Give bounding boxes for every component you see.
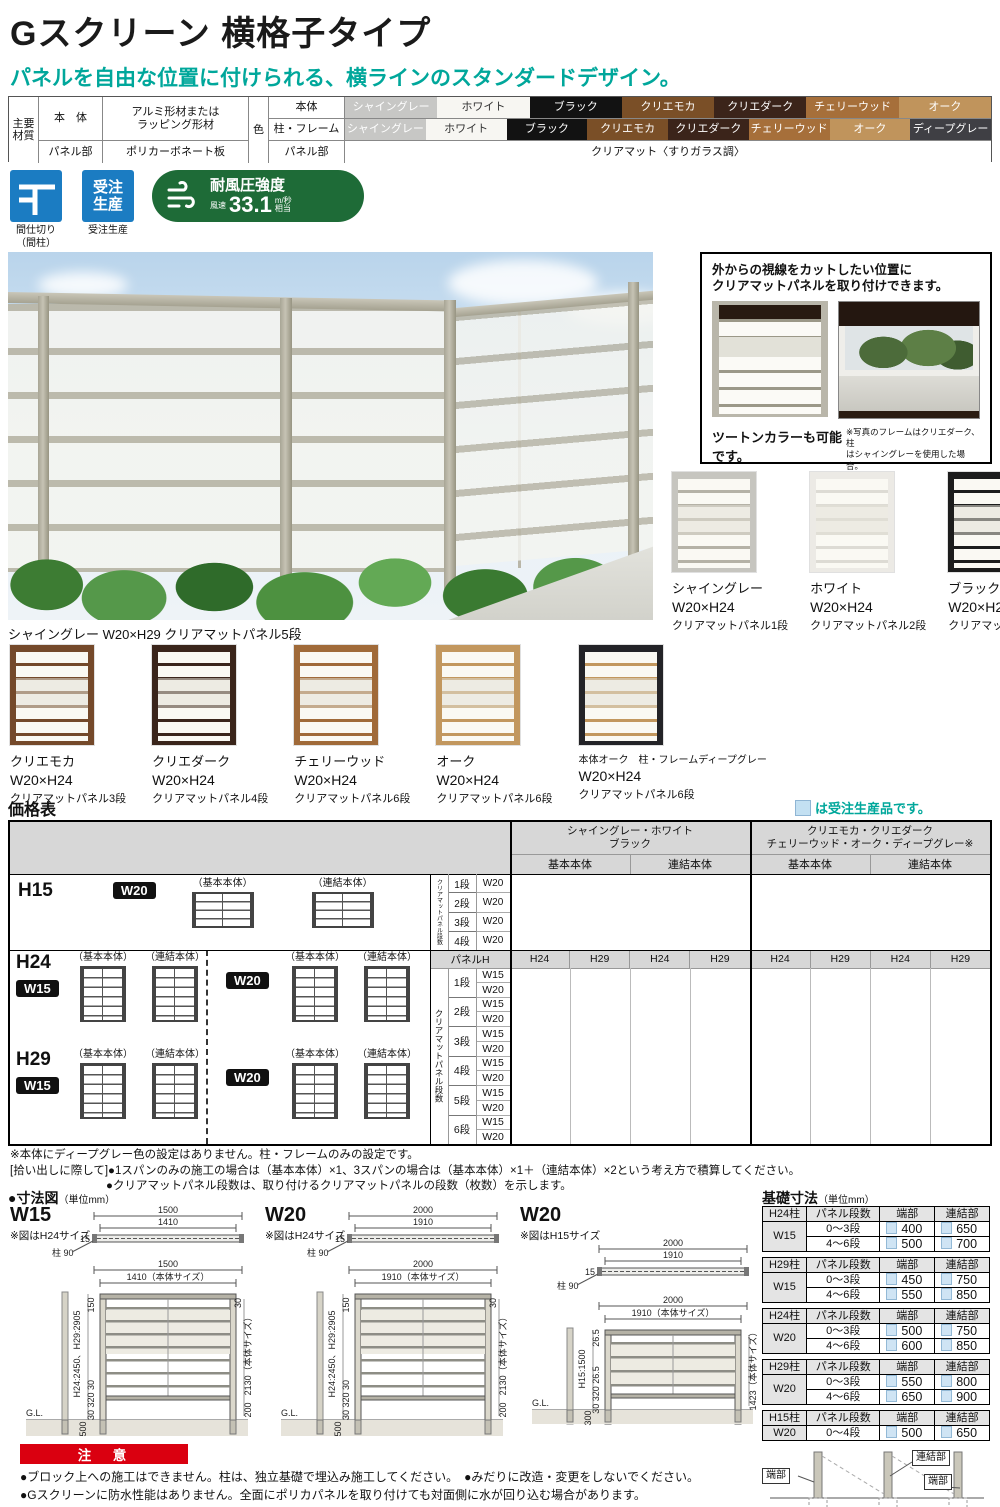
dimension-diagram-w15: W15 ※図はH24サイズ 1500 1410 15 柱 90 1500 141… [8,1204,258,1442]
svg-text:G.L.: G.L. [281,1408,298,1418]
svg-text:2000: 2000 [663,1238,683,1248]
svg-text:1410（本体サイズ）: 1410（本体サイズ） [127,1271,210,1282]
svg-text:30: 30 [488,1298,498,1308]
svg-text:1500: 1500 [158,1205,178,1215]
fence-thumbnail [10,645,94,745]
spec-panel-value: ポリカーボネート板 [103,141,249,163]
panel-count-side-label: クリアマットパネル段数 [430,874,448,950]
fence-line-diagram [152,966,198,1022]
partition-label: 間仕切り（間柱） [8,225,64,250]
edge-label: 端部 [762,1468,790,1484]
foundation-diagram: 端部 連結部 端部 [762,1446,990,1507]
svg-text:500: 500 [333,1421,343,1436]
variation-card: クリエモカW20×H24クリアマットパネル3段 [10,645,126,806]
callout-title-line2: クリアマットパネルを取り付けできます。 [712,278,980,294]
color-variations-right: シャイングレーW20×H24クリアマットパネル1段 ホワイトW20×H24クリア… [672,472,1000,633]
svg-text:30 320 30: 30 320 30 [341,1380,351,1420]
spec-table: 主要材質 本 体 アルミ形材またはラッピング形材 パネル部 ポリカーボネート板 … [8,96,992,162]
color-row2-label: 柱・フレーム [269,119,345,141]
callout-note: ※写真のフレームはクリエダーク、柱はシャイングレーを使用した場合。 [846,427,980,473]
subheader-basic: 基本本体 [750,854,870,874]
callout-photo [838,301,980,419]
svg-text:2000: 2000 [413,1205,433,1215]
h15-label: H15 [18,880,53,902]
page-title: Gスクリーン 横格子タイプ [10,6,431,55]
h15-row: H15 W20 （基本本体） （連結本体） [10,874,430,950]
fence-thumbnail [672,472,756,572]
wind-icon [166,179,200,213]
panel-count-side-label: クリアマットパネル段数 [430,968,448,1144]
w15-badge: W15 [16,980,59,997]
svg-text:1500: 1500 [158,1259,178,1269]
svg-text:G.L.: G.L. [532,1398,549,1408]
w20-badge: W20 [226,972,269,989]
note-line: ※本体にディープグレー色の設定はありません。柱・フレームのみの設定です。 [10,1148,800,1164]
spec-body-value: アルミ形材またはラッピング形材 [103,97,249,141]
feature-badges: 間仕切り（間柱） 受注生産 受注生産 耐風圧強度 風速 33.1 [8,170,364,250]
variation-card: ブラックW20×H24クリアマットパネル2段 [948,472,1000,633]
color-row1-swatches: シャイングレー ホワイト ブラック クリエモカ クリエダーク チェリーウッド オ… [345,97,991,119]
svg-text:2130（本体サイズ）: 2130（本体サイズ） [242,1313,253,1396]
svg-text:柱 90: 柱 90 [557,1280,579,1291]
page-subtitle: パネルを自由な位置に付けられる、横ラインのスタンダードデザイン。 [10,62,681,92]
caution-line: ●Gスクリーンに防水性能はありません。全面にポリカパネルを取り付けても対面側に水… [20,1486,646,1503]
h24-label: H24 [16,952,70,974]
svg-text:30 320 26.5: 30 320 26.5 [591,1366,601,1414]
fence-thumbnail [294,645,378,745]
color-swatch: ディープグレー [910,119,991,140]
dimension-diagrams: W15 ※図はH24サイズ 1500 1410 15 柱 90 1500 141… [8,1204,758,1444]
spec-panel-label: パネル部 [39,141,103,163]
svg-text:150: 150 [86,1297,96,1312]
fence-line-diagram [80,966,126,1022]
caution-banner: 注 意 [20,1444,188,1464]
w20-badge: W20 [113,882,156,899]
fence-line-diagram [364,966,410,1022]
svg-text:1423（本体サイズ）: 1423（本体サイズ） [747,1328,758,1411]
fence-line-diagram [312,892,374,928]
foundation-table: H29柱パネル段数端部連結部 W150〜3段 450 750 4〜6段 550 … [762,1257,990,1303]
wind-value: 33.1 [229,195,272,215]
svg-text:G.L.: G.L. [26,1408,43,1418]
price-table-title: 価格表 [8,796,56,820]
made-to-order-label: 受注生産 [80,225,136,238]
callout-fence-diagram [712,301,828,417]
color-swatch: シャイングレー [345,119,426,140]
color-swatch: シャイングレー [345,97,437,118]
svg-text:200: 200 [498,1402,508,1417]
svg-text:30: 30 [233,1298,243,1308]
wind-title: 耐風圧強度 [210,178,292,193]
fence-thumbnail [152,645,236,745]
price-table: シャイングレー・ホワイトブラック クリエモカ・クリエダークチェリーウッド・オーク… [8,820,992,1146]
foundation-table: H24柱パネル段数端部連結部 W150〜3段 400 650 4〜6段 500 … [762,1206,990,1252]
color-row2-swatches: シャイングレー ホワイト ブラック クリエモカ クリエダーク チェリーウッド オ… [345,119,991,141]
svg-text:200: 200 [243,1402,253,1417]
color-swatch: チェリーウッド [806,97,898,118]
made-to-order-legend: は受注生産品です。 [795,798,931,817]
foundation-table: H24柱パネル段数端部連結部 W200〜3段 500 750 4〜6段 600 … [762,1308,990,1354]
color-swatch: クリエモカ [622,97,714,118]
foundation-section-title: 基礎寸法（単位mm） [762,1188,875,1208]
svg-text:300: 300 [583,1410,593,1425]
foundation-table: H15柱パネル段数端部連結部 W200〜4段 500 650 [762,1410,990,1441]
caution-line: ●ブロック上への施工はできません。柱は、独立基礎で埋込み施工してください。 ●み… [20,1468,699,1485]
w15-badge: W15 [16,1077,59,1094]
svg-text:15: 15 [585,1267,595,1277]
variation-card: 本体オーク 柱・フレームディープグレーW20×H24クリアマットパネル6段 [579,645,729,806]
callout-box: 外からの視線をカットしたい位置に クリアマットパネルを取り付けできます。 ツート… [700,252,992,464]
svg-text:柱 90: 柱 90 [52,1247,74,1258]
fence-line-diagram [152,1063,198,1119]
svg-text:15: 15 [335,1234,345,1244]
fence-line-diagram [292,966,338,1022]
color-swatch: クリエダーク [668,119,749,140]
color-row1-label: 本体 [269,97,345,119]
made-to-order-icon: 受注生産 [82,170,134,222]
fence-thumbnail [436,645,520,745]
legend-square [795,800,811,816]
fence-thumbnail [579,645,663,745]
color-swatch: クリエモカ [587,119,668,140]
color-swatch: ホワイト [426,119,507,140]
edge-label: 端部 [924,1474,952,1490]
color-row3-label: パネル部 [269,141,345,163]
fence-thumbnail [810,472,894,572]
product-photo [8,252,653,620]
dimension-diagram-w20-h24: W20 ※図はH24サイズ 2000 1910 15 柱 90 2000 191… [263,1204,513,1442]
svg-text:26.5: 26.5 [591,1329,601,1347]
fence-line-diagram [364,1063,410,1119]
svg-text:H15:1500: H15:1500 [577,1349,587,1388]
dimension-diagram-w20-h15: W20 ※図はH15サイズ 2000 1910 15 柱 90 2000 191… [518,1204,768,1442]
svg-text:柱 90: 柱 90 [307,1247,329,1258]
svg-text:1910: 1910 [413,1217,433,1227]
color-swatch: オーク [899,97,991,118]
color-swatch: ブラック [530,97,622,118]
color-row3-value: クリアマット〈すりガラス調〉 [345,141,991,163]
spec-group-label: 主要材質 [9,97,39,163]
foundation-table: H29柱パネル段数端部連結部 W200〜3段 550 800 4〜6段 650 … [762,1359,990,1405]
panel-h-label: パネルH [430,950,510,968]
color-swatch: ホワイト [437,97,529,118]
color-swatch: オーク [830,119,911,140]
color-group-header-1: シャイングレー・ホワイトブラック [510,822,750,854]
color-variations-bottom: クリエモカW20×H24クリアマットパネル3段 クリエダークW20×H24クリア… [10,645,729,806]
wind-resistance-badge: 耐風圧強度 風速 33.1 m/秒相当 [152,170,364,222]
callout-title-line1: 外からの視線をカットしたい位置に [712,262,980,278]
w20-badge: W20 [226,1069,269,1086]
color-swatch: チェリーウッド [749,119,830,140]
table-notes: ※本体にディープグレー色の設定はありません。柱・フレームのみの設定です。 [拾い… [10,1148,800,1195]
catalog-page: Gスクリーン 横格子タイプ パネルを自由な位置に付けられる、横ラインのスタンダー… [0,0,1000,1507]
partition-icon [10,170,62,222]
subheader-basic: 基本本体 [510,854,630,874]
svg-text:1410: 1410 [158,1217,178,1227]
svg-text:2000: 2000 [663,1295,683,1305]
svg-text:15: 15 [80,1234,90,1244]
fence-line-diagram [292,1063,338,1119]
svg-text:H24:2450、H29:2905: H24:2450、H29:2905 [327,1310,337,1397]
fence-line-diagram [192,892,254,928]
note-line: ●クリアマットパネル段数は、取り付けるクリアマットパネルの段数（枚数）を示します… [10,1179,800,1195]
svg-text:1910（本体サイズ）: 1910（本体サイズ） [382,1271,465,1282]
spec-body-label: 本 体 [39,97,103,141]
variation-card: クリエダークW20×H24クリアマットパネル4段 [152,645,268,806]
color-swatch: ブラック [507,119,588,140]
svg-text:500: 500 [78,1421,88,1436]
h29-label: H29 [16,1049,70,1071]
svg-text:150: 150 [341,1297,351,1312]
variation-card: オークW20×H24クリアマットパネル6段 [436,645,552,806]
svg-text:2130（本体サイズ）: 2130（本体サイズ） [497,1313,508,1396]
color-swatch: クリエダーク [714,97,806,118]
fence-line-diagram [80,1063,126,1119]
svg-text:1910: 1910 [663,1250,683,1260]
svg-text:2000: 2000 [413,1259,433,1269]
svg-text:30 320 30: 30 320 30 [86,1380,96,1420]
note-line: [拾い出しに際して]●1スパンのみの施工の場合は（基本本体）×1、3スパンの場合… [10,1164,800,1180]
joint-label: 連結部 [912,1450,950,1466]
variation-card: ホワイトW20×H24クリアマットパネル2段 [810,472,926,633]
svg-text:1910（本体サイズ）: 1910（本体サイズ） [632,1307,715,1318]
foundation-tables: H24柱パネル段数端部連結部 W150〜3段 400 650 4〜6段 500 … [762,1206,992,1507]
subheader-joint: 連結本体 [870,854,990,874]
variation-card: チェリーウッドW20×H24クリアマットパネル6段 [294,645,410,806]
spec-color-label: 色 [249,97,269,163]
fence-thumbnail [948,472,1000,572]
h24-h29-rows: H24 W15 （基本本体） （連結本体） W20 （基本本体） （連結本体） … [10,950,430,1144]
svg-text:H24:2450、H29:2905: H24:2450、H29:2905 [72,1310,82,1397]
variation-card: シャイングレーW20×H24クリアマットパネル1段 [672,472,788,633]
photo-caption: シャイングレー W20×H29 クリアマットパネル5段 [8,624,302,643]
subheader-joint: 連結本体 [630,854,750,874]
color-group-header-2: クリエモカ・クリエダークチェリーウッド・オーク・ディープグレー※ [750,822,990,854]
two-tone-caption: ツートンカラーも可能です。 [712,427,846,465]
